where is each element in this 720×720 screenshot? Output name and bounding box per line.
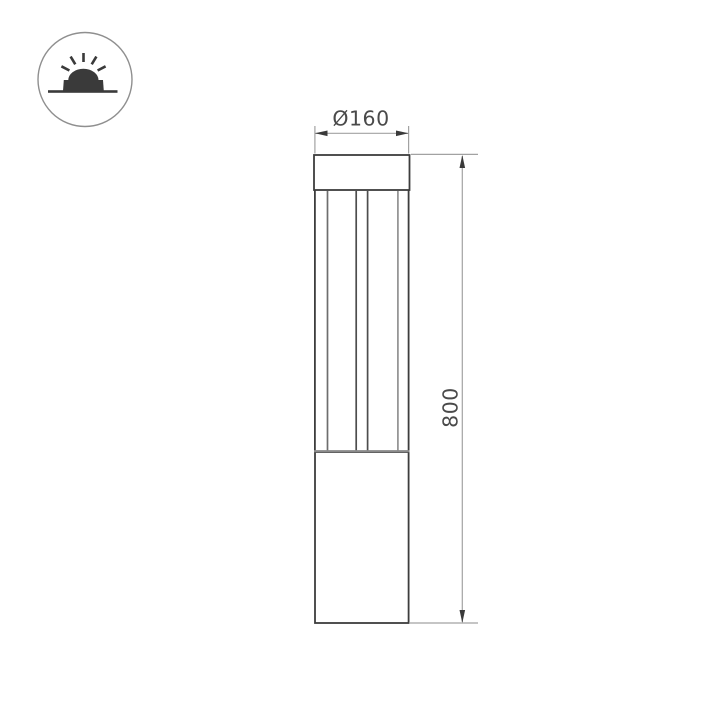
bollard-body xyxy=(315,452,409,623)
diameter-label: Ø160 xyxy=(332,107,389,131)
uplight-badge xyxy=(38,33,132,127)
technical-drawing: Ø160 800 xyxy=(0,0,720,720)
louvre-inner-lines xyxy=(328,191,398,451)
bollard-cap xyxy=(314,155,410,190)
drawing-page: Ø160 800 xyxy=(0,0,720,720)
height-dimension: 800 xyxy=(410,154,478,623)
height-label: 800 xyxy=(439,387,463,428)
icon-fixture-base xyxy=(63,80,104,91)
diameter-dimension: Ø160 xyxy=(315,107,409,154)
